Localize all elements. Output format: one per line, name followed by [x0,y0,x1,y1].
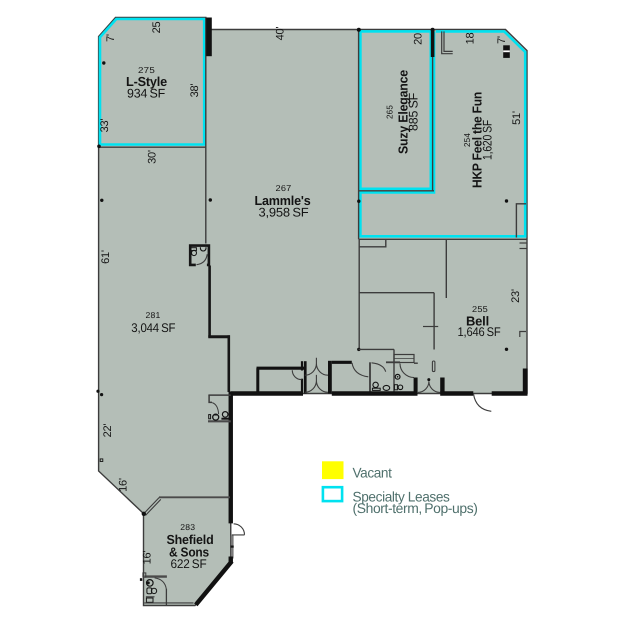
svg-text:1,620 SF: 1,620 SF [481,120,495,160]
svg-text:265: 265 [385,105,395,119]
svg-text:885 SF: 885 SF [407,92,421,131]
svg-text:51': 51' [511,111,523,125]
svg-text:283: 283 [180,522,195,532]
svg-text:Vacant: Vacant [353,465,392,481]
svg-text:934 SF: 934 SF [127,87,166,101]
svg-text:16': 16' [118,478,130,492]
svg-text:7': 7' [105,34,117,42]
svg-text:25: 25 [151,22,163,34]
svg-text:38': 38' [189,84,201,98]
svg-text:22': 22' [102,424,114,438]
svg-text:30': 30' [147,150,159,164]
svg-text:23': 23' [510,289,522,303]
svg-text:40': 40' [275,27,287,41]
svg-text:267: 267 [276,183,292,193]
svg-text:622 SF: 622 SF [171,557,208,571]
svg-text:61': 61' [100,250,112,264]
svg-text:18: 18 [465,33,477,45]
svg-text:7': 7' [496,36,508,44]
svg-text:33': 33' [99,119,111,133]
svg-text:281: 281 [146,310,161,320]
svg-text:255: 255 [472,304,488,314]
svg-text:16': 16' [142,551,154,565]
svg-text:(Short-term, Pop-ups): (Short-term, Pop-ups) [353,500,478,516]
svg-text:20: 20 [413,33,425,45]
svg-text:1,646 SF: 1,646 SF [458,325,502,339]
svg-text:3,044 SF: 3,044 SF [131,321,176,335]
svg-text:3,958 SF: 3,958 SF [259,206,310,220]
